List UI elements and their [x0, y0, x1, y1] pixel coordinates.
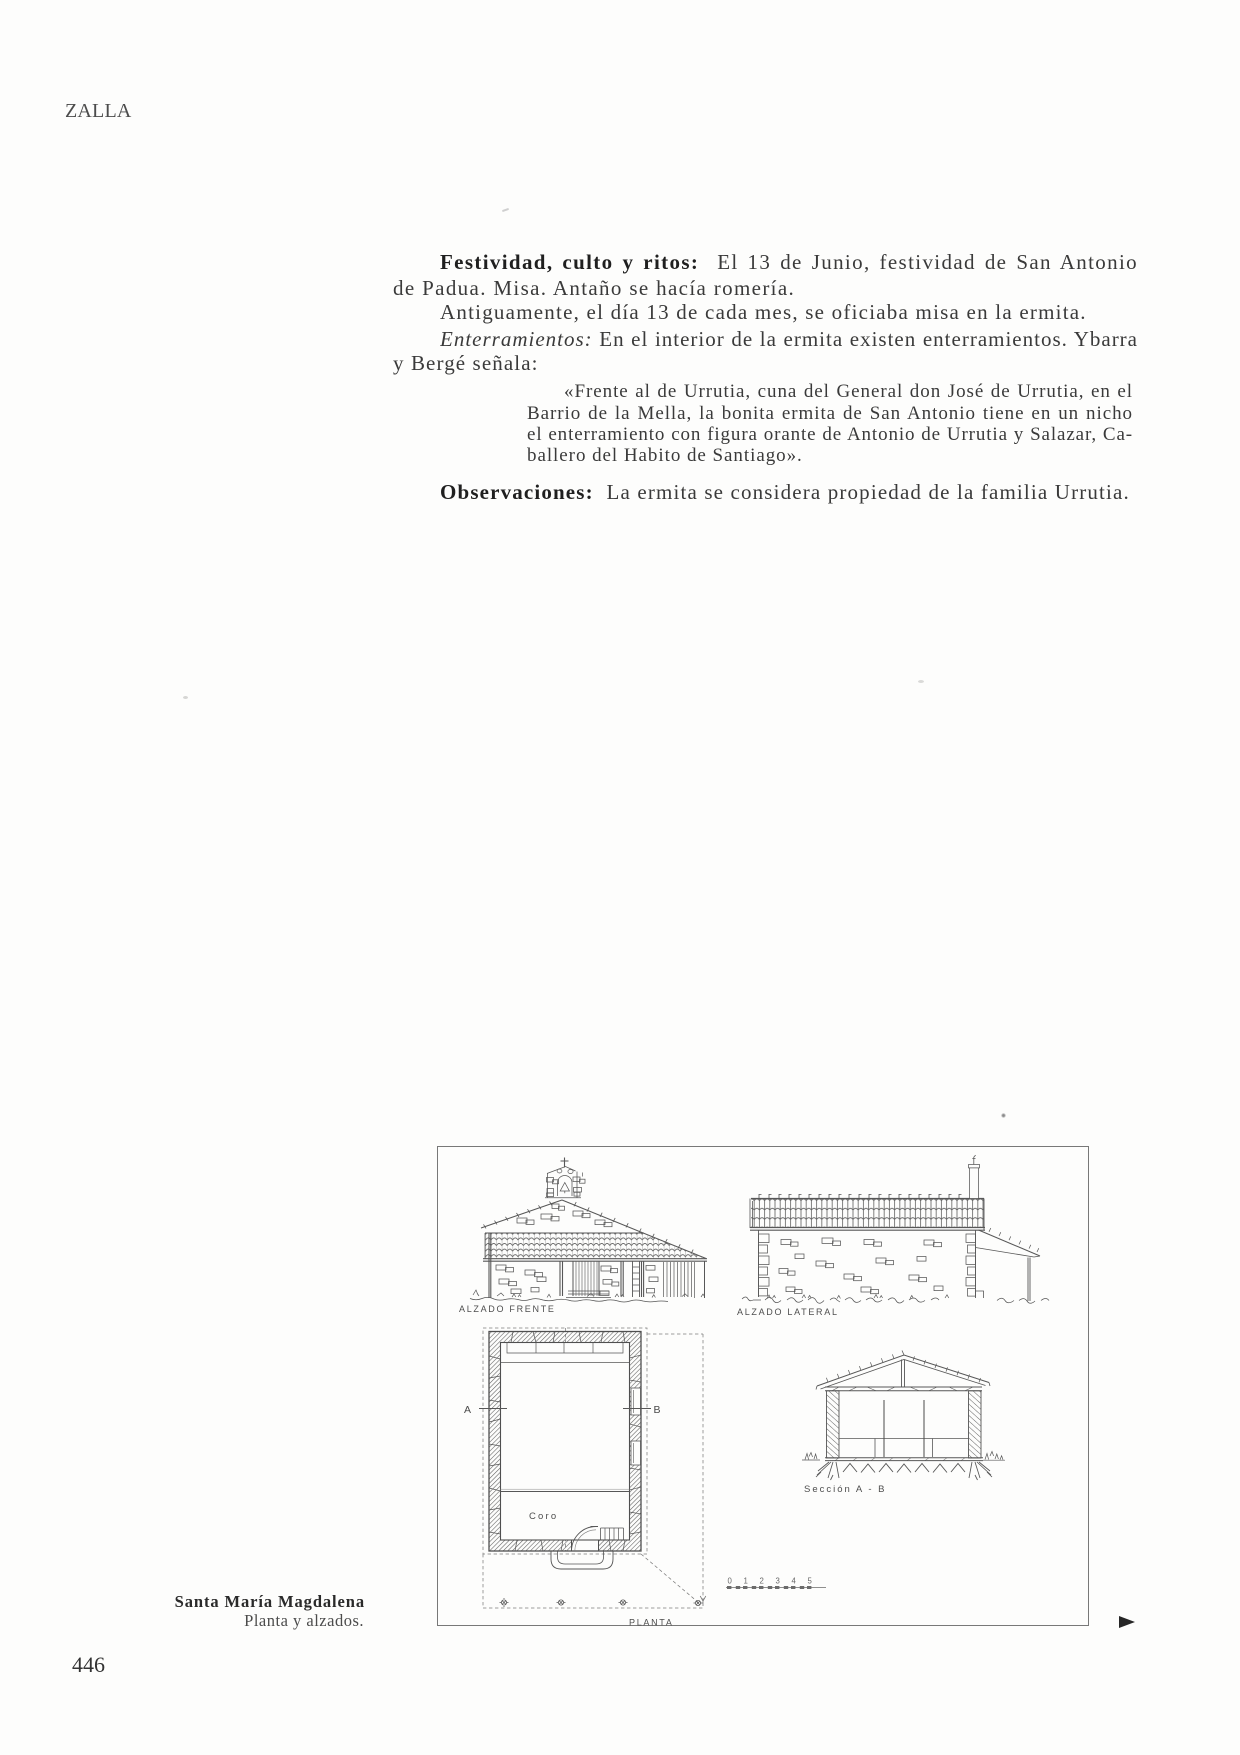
svg-text:2: 2	[760, 1577, 764, 1586]
svg-text:ALZADO FRENTE: ALZADO FRENTE	[459, 1304, 556, 1314]
svg-text:Coro: Coro	[529, 1511, 558, 1522]
svg-text:PLANTA: PLANTA	[629, 1618, 674, 1627]
svg-text:3: 3	[776, 1577, 780, 1586]
svg-text:4: 4	[792, 1577, 797, 1586]
svg-text:1: 1	[744, 1577, 748, 1586]
svg-text:B: B	[654, 1404, 661, 1416]
svg-text:Sección A - B: Sección A - B	[804, 1484, 887, 1495]
svg-text:ALZADO LATERAL: ALZADO LATERAL	[737, 1307, 839, 1317]
svg-text:A: A	[464, 1404, 471, 1416]
svg-text:0: 0	[728, 1577, 733, 1586]
svg-text:5: 5	[808, 1577, 813, 1586]
